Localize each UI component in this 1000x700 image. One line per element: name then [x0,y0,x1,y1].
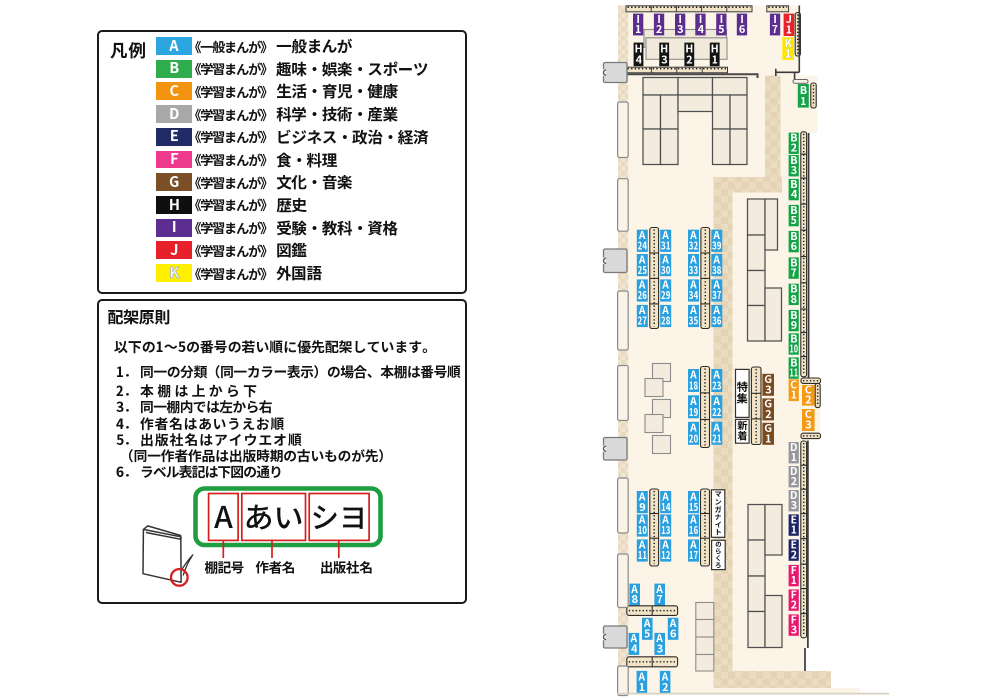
svg-text:シヨ: シヨ [311,495,368,537]
svg-text:4: 4 [791,187,798,202]
svg-text:1: 1 [791,388,797,403]
svg-text:5: 5 [718,22,724,37]
svg-text:28: 28 [661,313,670,328]
svg-text:ト: ト [715,528,722,538]
svg-text:35: 35 [689,313,698,328]
svg-text:8: 8 [791,292,797,307]
svg-text:1: 1 [712,53,718,68]
svg-text:33: 33 [689,262,698,277]
svg-text:3: 3 [805,418,811,433]
svg-text:19: 19 [689,404,698,419]
svg-text:あい: あい [244,495,304,537]
svg-text:3: 3 [765,382,771,397]
svg-text:6: 6 [791,239,798,254]
svg-text:1: 1 [791,450,797,465]
svg-text:1: 1 [800,94,806,109]
svg-text:39: 39 [712,237,721,252]
svg-text:2: 2 [791,474,797,489]
svg-text:12: 12 [661,547,670,562]
svg-text:2: 2 [765,407,771,422]
svg-text:13: 13 [661,522,670,537]
svg-text:ろ: ろ [715,560,722,570]
svg-text:3: 3 [661,53,667,68]
svg-text:30: 30 [661,262,670,277]
svg-text:34: 34 [689,287,699,302]
svg-text:26: 26 [638,287,647,302]
svg-text:10: 10 [638,522,647,537]
svg-text:29: 29 [661,287,670,302]
svg-text:作者名: 作者名 [255,557,294,577]
svg-text:21: 21 [712,430,721,445]
svg-text:22: 22 [712,404,721,419]
svg-text:14: 14 [661,499,671,514]
svg-text:16: 16 [689,522,698,537]
svg-text:1: 1 [639,680,645,695]
svg-text:3: 3 [677,22,683,37]
svg-text:2: 2 [656,22,662,37]
svg-text:17: 17 [689,547,698,562]
svg-text:11: 11 [638,547,647,562]
svg-text:棚記号: 棚記号 [204,557,243,577]
svg-text:2: 2 [686,53,692,68]
svg-text:4: 4 [697,22,704,37]
svg-text:1: 1 [785,46,791,61]
svg-text:3: 3 [791,622,797,637]
svg-text:2: 2 [805,392,811,407]
svg-text:5: 5 [644,626,650,641]
svg-text:31: 31 [661,237,670,252]
svg-text:25: 25 [638,262,647,277]
svg-text:18: 18 [689,377,698,392]
svg-text:出版社名: 出版社名 [320,557,372,577]
svg-text:4: 4 [631,641,638,656]
svg-text:1: 1 [765,431,771,446]
svg-text:7: 7 [772,22,778,37]
svg-text:4: 4 [635,53,642,68]
svg-text:2: 2 [791,547,797,562]
svg-text:36: 36 [712,313,721,328]
svg-text:10: 10 [789,340,798,355]
svg-text:2: 2 [791,597,797,612]
svg-text:3: 3 [657,641,663,656]
svg-text:1: 1 [635,22,641,37]
svg-text:37: 37 [712,287,721,302]
svg-text:3: 3 [791,163,797,178]
svg-text:5: 5 [791,213,797,228]
svg-text:20: 20 [689,430,698,445]
svg-text:6: 6 [739,22,746,37]
svg-text:6: 6 [670,626,677,641]
svg-text:38: 38 [712,262,721,277]
svg-text:24: 24 [638,237,648,252]
svg-text:2: 2 [662,680,668,695]
svg-text:1: 1 [791,522,797,537]
svg-text:32: 32 [689,237,698,252]
svg-text:3: 3 [791,498,797,513]
svg-text:A: A [214,493,233,537]
svg-text:7: 7 [791,265,797,280]
svg-text:着: 着 [737,428,747,443]
svg-text:23: 23 [712,377,721,392]
svg-text:27: 27 [638,313,647,328]
svg-text:1: 1 [791,573,797,588]
svg-text:集: 集 [737,391,748,407]
svg-text:8: 8 [632,592,638,607]
svg-text:7: 7 [657,592,663,607]
svg-text:15: 15 [689,499,698,514]
